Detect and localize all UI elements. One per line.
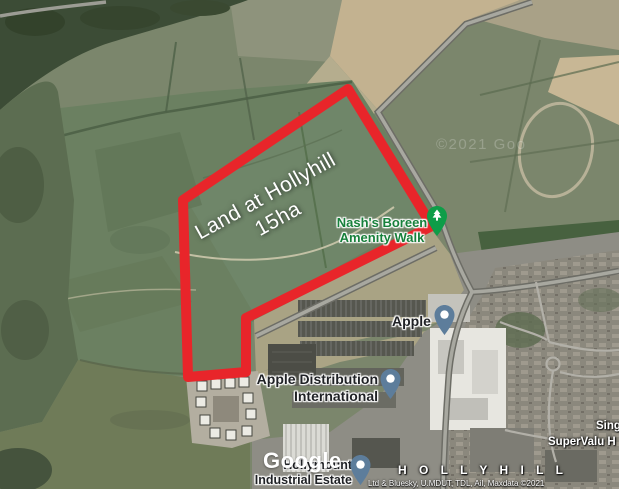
amenity-line2: Amenity Walk bbox=[334, 230, 430, 245]
map-attribution[interactable]: Ltd & Bluesky, U.MDUT, TDL, Ail, Maxdata… bbox=[368, 479, 544, 488]
poi-pin-apple-distribution-icon[interactable] bbox=[380, 369, 401, 399]
district-label-hollyhill: H O L L Y H I L L bbox=[398, 463, 542, 477]
google-logo[interactable]: Google bbox=[263, 448, 342, 474]
poi-label-apple[interactable]: Apple bbox=[392, 314, 431, 329]
hollymount-line2: Industrial Estate bbox=[226, 473, 352, 488]
map-canvas[interactable]: ©2021 Goo Land at Hollyhill 15ha Nash's … bbox=[0, 0, 619, 489]
poi-label-amenity-walk[interactable]: Nash's Boreen Amenity Walk bbox=[334, 215, 430, 245]
apple-dist-line2: International bbox=[246, 388, 378, 405]
poi-label-singers[interactable]: Sing bbox=[596, 420, 619, 432]
poi-label-supervalu[interactable]: SuperValu H bbox=[548, 436, 616, 448]
poi-label-apple-distribution[interactable]: Apple Distribution International bbox=[246, 371, 378, 405]
tile-watermark: ©2021 Goo bbox=[436, 136, 526, 153]
satellite-imagery bbox=[0, 0, 619, 489]
tree-pin-icon[interactable] bbox=[427, 206, 447, 236]
poi-pin-apple-icon[interactable] bbox=[434, 305, 455, 335]
amenity-line1: Nash's Boreen bbox=[334, 215, 430, 230]
apple-dist-line1: Apple Distribution bbox=[246, 371, 378, 388]
